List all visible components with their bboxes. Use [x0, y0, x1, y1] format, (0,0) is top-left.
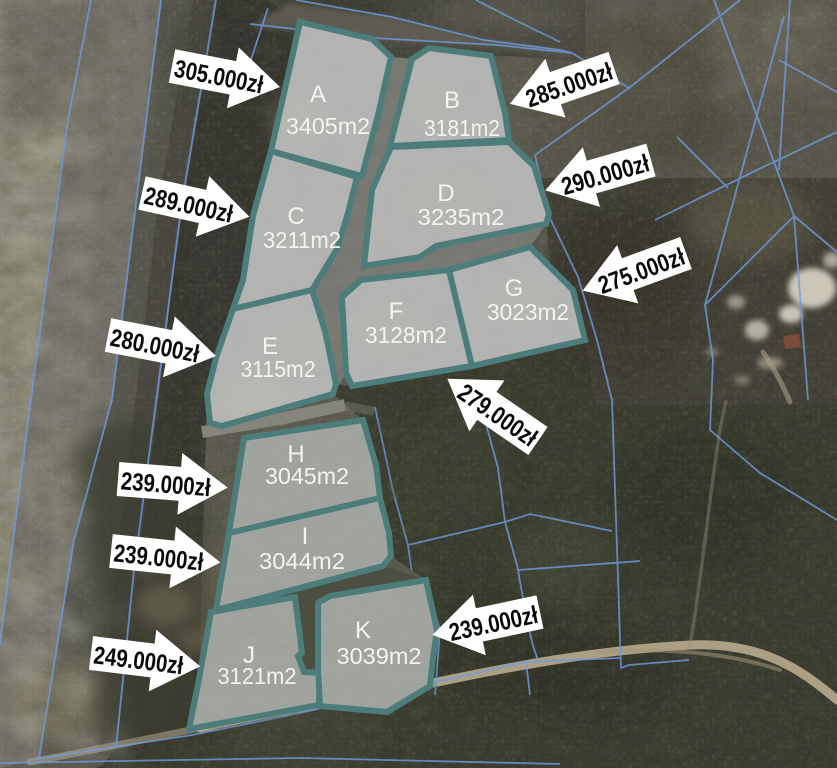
svg-text:3405m2: 3405m2 — [286, 113, 370, 139]
svg-text:3039m2: 3039m2 — [337, 643, 422, 669]
svg-text:3121m2: 3121m2 — [218, 663, 297, 689]
svg-text:D: D — [437, 180, 454, 207]
svg-text:3181m2: 3181m2 — [424, 115, 500, 141]
svg-text:B: B — [444, 87, 460, 114]
svg-text:3235m2: 3235m2 — [418, 204, 505, 230]
svg-text:3211m2: 3211m2 — [263, 227, 341, 253]
svg-text:K: K — [355, 617, 371, 644]
svg-text:3128m2: 3128m2 — [365, 322, 447, 348]
svg-text:3044m2: 3044m2 — [259, 548, 345, 574]
svg-text:3023m2: 3023m2 — [487, 299, 569, 325]
svg-text:A: A — [310, 81, 326, 108]
svg-text:3115m2: 3115m2 — [241, 356, 316, 382]
svg-text:I: I — [302, 523, 309, 550]
svg-text:G: G — [505, 275, 524, 302]
svg-text:C: C — [287, 203, 304, 230]
svg-text:3045m2: 3045m2 — [265, 463, 349, 489]
svg-text:F: F — [389, 298, 404, 325]
